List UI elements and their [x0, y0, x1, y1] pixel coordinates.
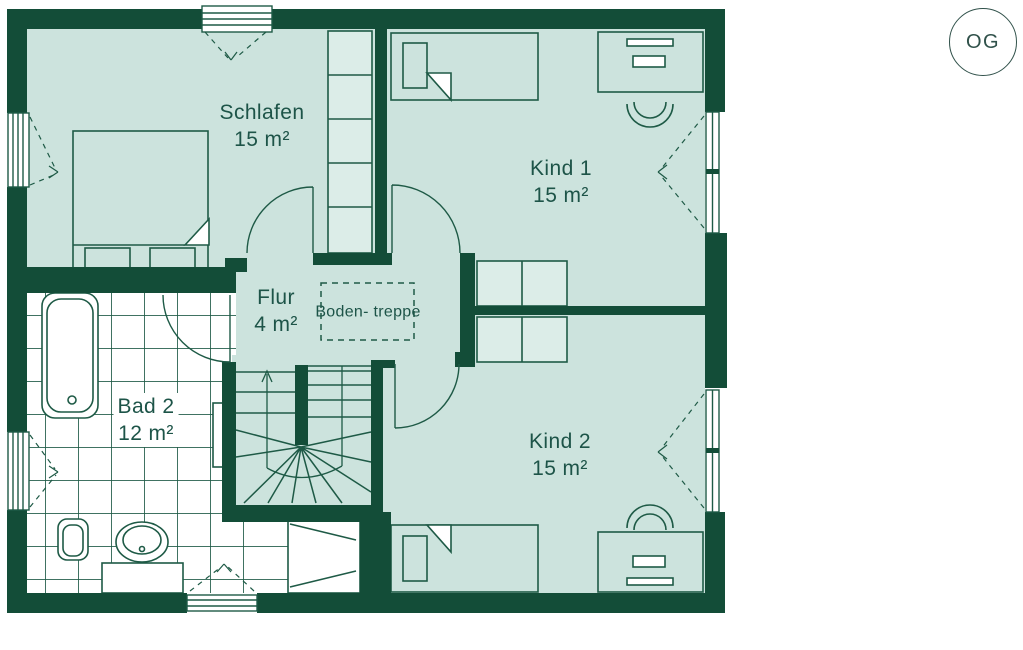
wall-schlafen-kind1	[375, 29, 387, 265]
wall-right	[705, 512, 725, 593]
room-label-kind1: Kind 1 15 m²	[530, 155, 592, 209]
wall-stair-east	[371, 360, 383, 512]
swing-left-bad	[30, 435, 56, 507]
desk-monitor	[627, 578, 673, 585]
window-right-kind1	[706, 112, 719, 233]
room-area: 4 m²	[254, 311, 298, 338]
attic-hatch-label: Boden- treppe	[315, 302, 420, 323]
desk-monitor	[627, 39, 673, 46]
wall-bottom	[7, 593, 187, 613]
room-name: Flur	[254, 284, 298, 311]
room-name: Kind 2	[529, 428, 591, 455]
window-left-bad	[8, 432, 29, 510]
wardrobe	[328, 31, 372, 253]
roof-window-box	[288, 518, 360, 593]
door-kind2	[395, 364, 459, 428]
wall-flur-north	[313, 253, 392, 265]
floor-badge-label: OG	[966, 31, 1000, 54]
wall-right	[705, 29, 725, 112]
desk-keyboard	[633, 556, 665, 567]
room-label-kind2: Kind 2 15 m²	[529, 428, 591, 482]
desk-chair-icon	[627, 104, 673, 127]
door-kind1	[392, 185, 460, 253]
bed-pillow	[150, 248, 195, 268]
room-name: Kind 1	[530, 155, 592, 182]
roof-window	[288, 518, 360, 593]
bed-pillow	[403, 43, 427, 88]
wall-stub-foot	[455, 352, 475, 367]
floorplan-canvas: Schlafen 15 m² Kind 1 15 m² Kind 2 15 m²…	[0, 0, 1023, 650]
window-left-schlafen	[8, 113, 29, 187]
room-name: Bad 2	[114, 393, 179, 420]
wall-right-pier	[705, 233, 727, 388]
door-schlafen	[247, 187, 313, 253]
desk-chair-icon	[634, 102, 666, 118]
room-area: 15 m²	[530, 182, 592, 209]
room-label-flur: Flur 4 m²	[254, 284, 298, 338]
swing-bottom-bad	[190, 566, 254, 591]
window-right-kind2	[706, 390, 719, 512]
room-name: Schlafen	[220, 99, 305, 126]
bed-pillow	[403, 536, 427, 581]
room-area: 15 m²	[529, 455, 591, 482]
wall-bottom	[257, 593, 725, 613]
schlafen-furniture	[73, 31, 372, 283]
stair-spine-wall	[295, 365, 308, 445]
staircase	[232, 355, 371, 505]
attic-hatch-line2: treppe	[373, 304, 420, 321]
room-label-schlafen: Schlafen 15 m²	[220, 99, 305, 153]
room-area: 15 m²	[220, 126, 305, 153]
wall-stair-flange	[371, 360, 395, 368]
kind1-furniture	[391, 32, 703, 127]
wall-top	[7, 9, 202, 29]
dormer-window-top	[202, 6, 272, 32]
wall-flur-east-stub	[460, 253, 475, 367]
bathtub	[42, 293, 98, 418]
swing-right-kind1	[661, 116, 704, 228]
floor-badge: OG	[949, 8, 1017, 76]
wall-left	[7, 29, 27, 113]
floorplan-drawing	[0, 0, 1023, 650]
attic-hatch-line1: Boden-	[315, 304, 368, 321]
wall-stair-east-lower	[360, 512, 391, 593]
swing-right-kind2	[661, 394, 704, 508]
desk-chair-icon	[634, 514, 666, 530]
swing-left-schlafen	[30, 117, 56, 185]
wall-left	[7, 187, 27, 432]
wall-top	[272, 9, 725, 29]
wall-bad-north	[7, 267, 236, 293]
room-label-bad2: Bad 2 12 m²	[114, 393, 179, 447]
desk-keyboard	[633, 56, 665, 67]
bed-pillow	[85, 248, 130, 268]
wall-bad-east	[222, 362, 236, 522]
wall-kind1-kind2	[475, 306, 705, 315]
door-bad	[163, 295, 230, 362]
kind2-furniture	[391, 505, 703, 592]
bath-cabinet	[102, 563, 183, 593]
window-bottom-bad	[187, 595, 257, 611]
room-area: 12 m²	[114, 420, 179, 447]
desk-chair-icon	[627, 505, 673, 528]
wall-stair-south	[222, 505, 383, 522]
